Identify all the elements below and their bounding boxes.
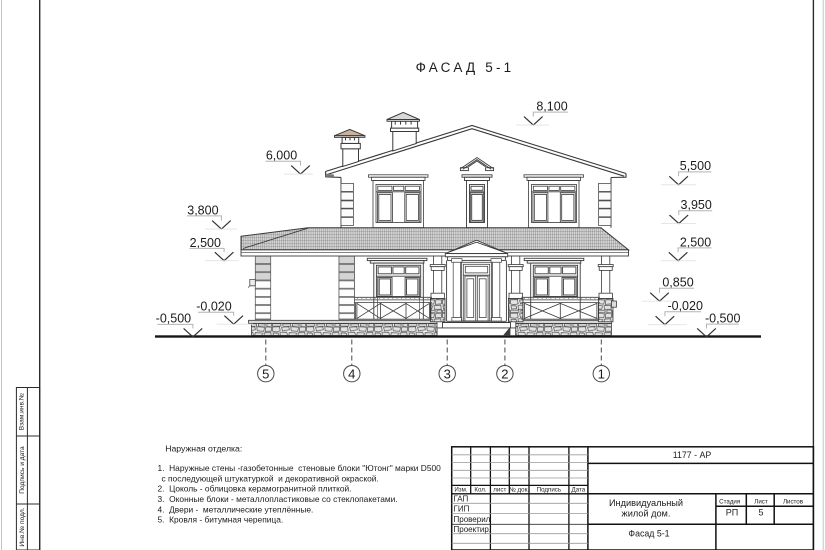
svg-text:Лист: Лист — [754, 499, 768, 506]
svg-text:Проверил: Проверил — [454, 515, 491, 524]
svg-text:Стадия: Стадия — [719, 499, 740, 506]
svg-text:2: 2 — [501, 367, 508, 382]
svg-text:1177 - АР: 1177 - АР — [673, 450, 712, 460]
svg-text:Подпись: Подпись — [537, 487, 562, 494]
svg-text:5,500: 5,500 — [680, 159, 711, 173]
svg-text:лист: лист — [493, 487, 506, 494]
svg-text:2,500: 2,500 — [190, 236, 221, 250]
svg-text:РП: РП — [726, 508, 738, 518]
svg-text:Фасад 5-1: Фасад 5-1 — [628, 528, 669, 538]
svg-text:Кол.: Кол. — [474, 487, 487, 494]
svg-text:0,850: 0,850 — [662, 276, 693, 290]
svg-text:Наружная отделка:: Наружная отделка: — [165, 443, 242, 453]
svg-text:Индивидуальный: Индивидуальный — [609, 498, 683, 508]
svg-text:ГАП: ГАП — [454, 494, 469, 503]
svg-text:1. Наружные стены -газобетонн: 1. Наружные стены -газобетонные стеновые… — [158, 463, 442, 473]
svg-text:-0,500: -0,500 — [705, 311, 740, 325]
svg-text:Проектир.: Проектир. — [454, 525, 492, 534]
svg-text:1: 1 — [598, 367, 605, 382]
svg-text:Листов: Листов — [783, 499, 804, 506]
svg-text:Дата: Дата — [572, 487, 586, 494]
svg-text:№ док.: № док. — [509, 487, 529, 494]
svg-text:-0,020: -0,020 — [667, 299, 702, 313]
svg-text:3,800: 3,800 — [187, 203, 218, 217]
svg-text:3. Оконные блоки - металлопла: 3. Оконные блоки - металлопластиковые со… — [158, 494, 398, 504]
svg-text:-0,500: -0,500 — [156, 312, 191, 326]
svg-text:Изм.: Изм. — [454, 487, 468, 494]
svg-text:жилой дом.: жилой дом. — [622, 508, 671, 518]
svg-text:с последующей штукатуркой и д: с последующей штукатуркой и декоративной… — [162, 473, 379, 483]
svg-text:Взам.инв.№: Взам.инв.№ — [19, 393, 26, 430]
svg-text:Подпись и дата: Подпись и дата — [19, 446, 26, 494]
svg-text:8,100: 8,100 — [536, 100, 567, 114]
svg-text:Инв.№ подл.: Инв.№ подл. — [19, 507, 26, 546]
svg-text:2. Цоколь - облицовка керамог: 2. Цоколь - облицовка керамогранитной пл… — [158, 484, 352, 494]
svg-text:6,000: 6,000 — [266, 149, 297, 163]
svg-text:-0,020: -0,020 — [196, 300, 231, 314]
svg-text:5: 5 — [758, 508, 763, 518]
svg-text:ГИП: ГИП — [454, 504, 470, 513]
svg-text:3,950: 3,950 — [681, 198, 712, 212]
svg-text:4. Двери - металлические уте: 4. Двери - металлические утеплённые. — [158, 504, 314, 514]
svg-text:4: 4 — [348, 367, 355, 382]
svg-text:3: 3 — [444, 367, 451, 382]
svg-text:5. Кровля - битумная черепица: 5. Кровля - битумная черепица. — [158, 515, 284, 525]
svg-text:2,500: 2,500 — [680, 235, 711, 249]
svg-text:ФАСАД 5-1: ФАСАД 5-1 — [416, 60, 515, 75]
svg-text:5: 5 — [262, 367, 269, 382]
